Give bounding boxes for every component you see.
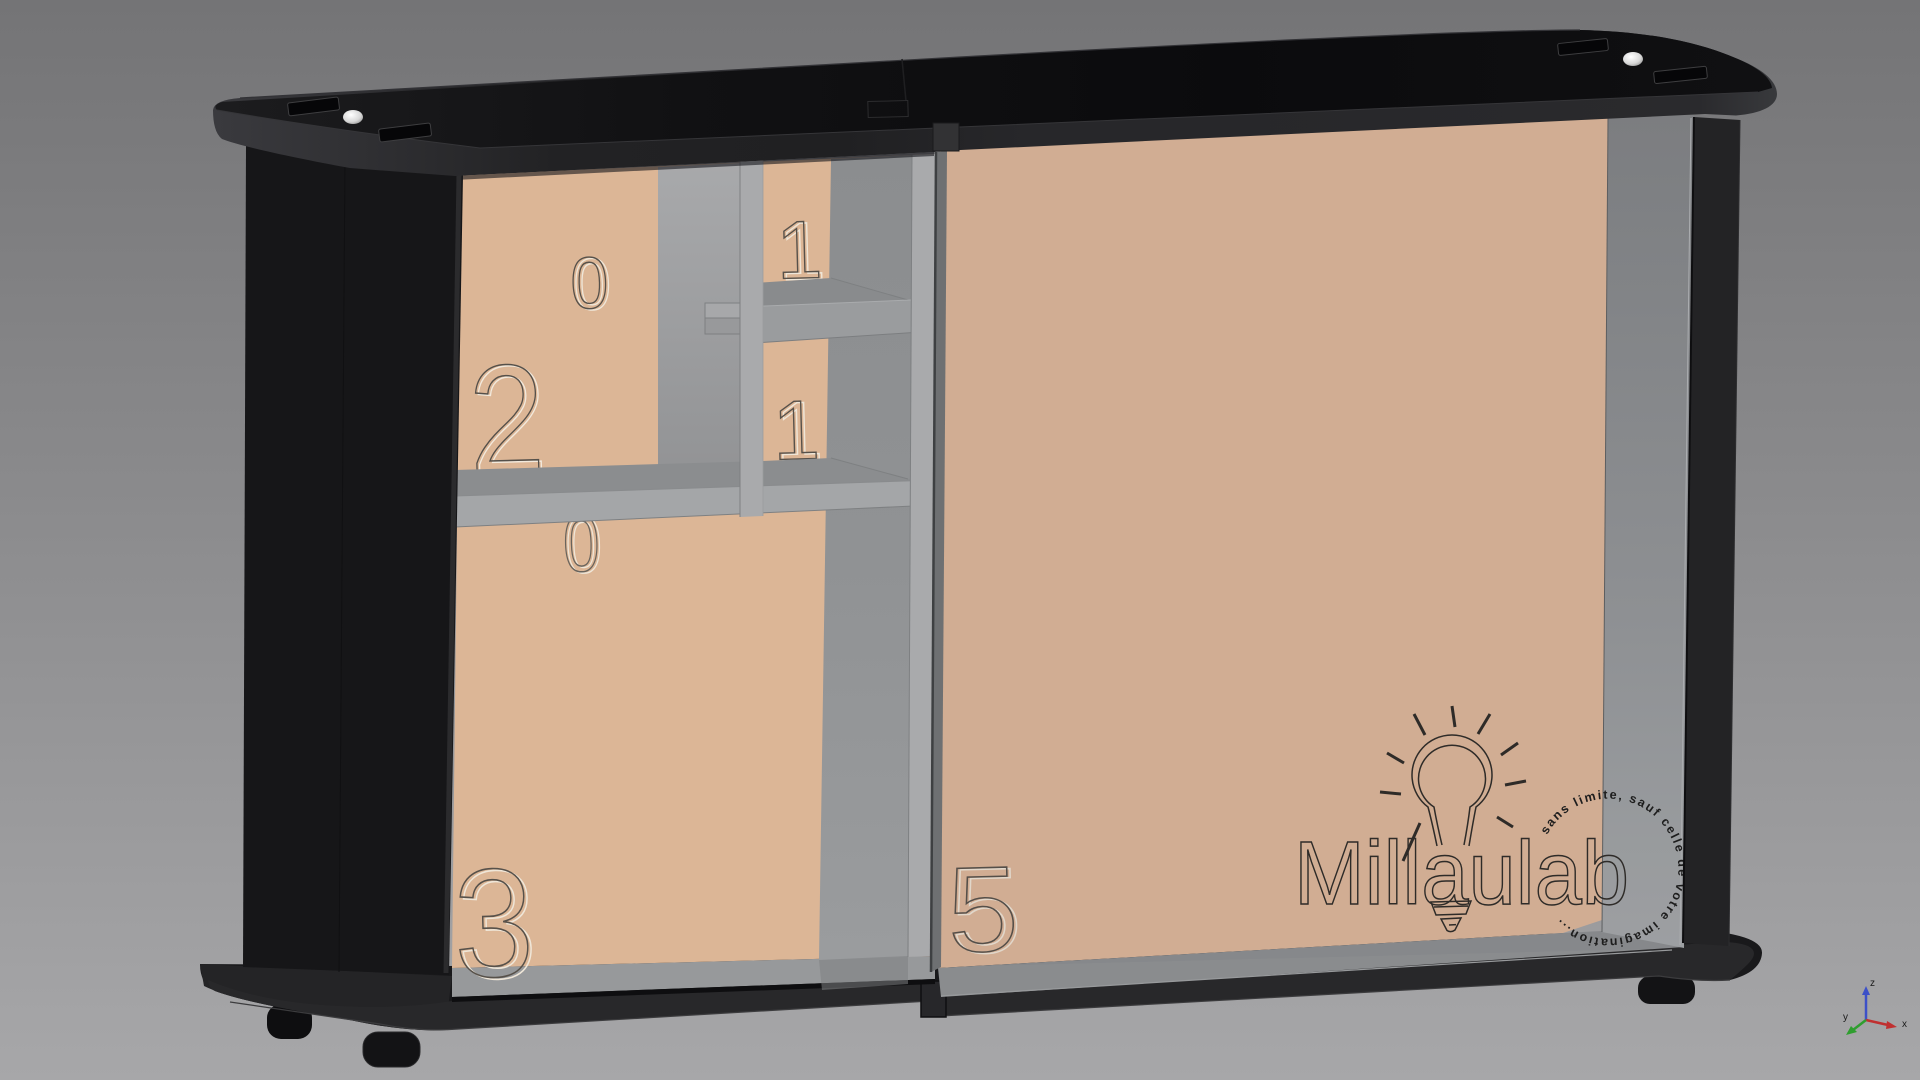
svg-text:Millaulab: Millaulab	[1294, 824, 1629, 924]
svg-text:3: 3	[452, 835, 536, 1010]
svg-text:x: x	[1902, 1019, 1907, 1030]
svg-text:z: z	[1870, 978, 1875, 989]
svg-text:y: y	[1843, 1012, 1848, 1023]
svg-text:0: 0	[569, 241, 609, 324]
